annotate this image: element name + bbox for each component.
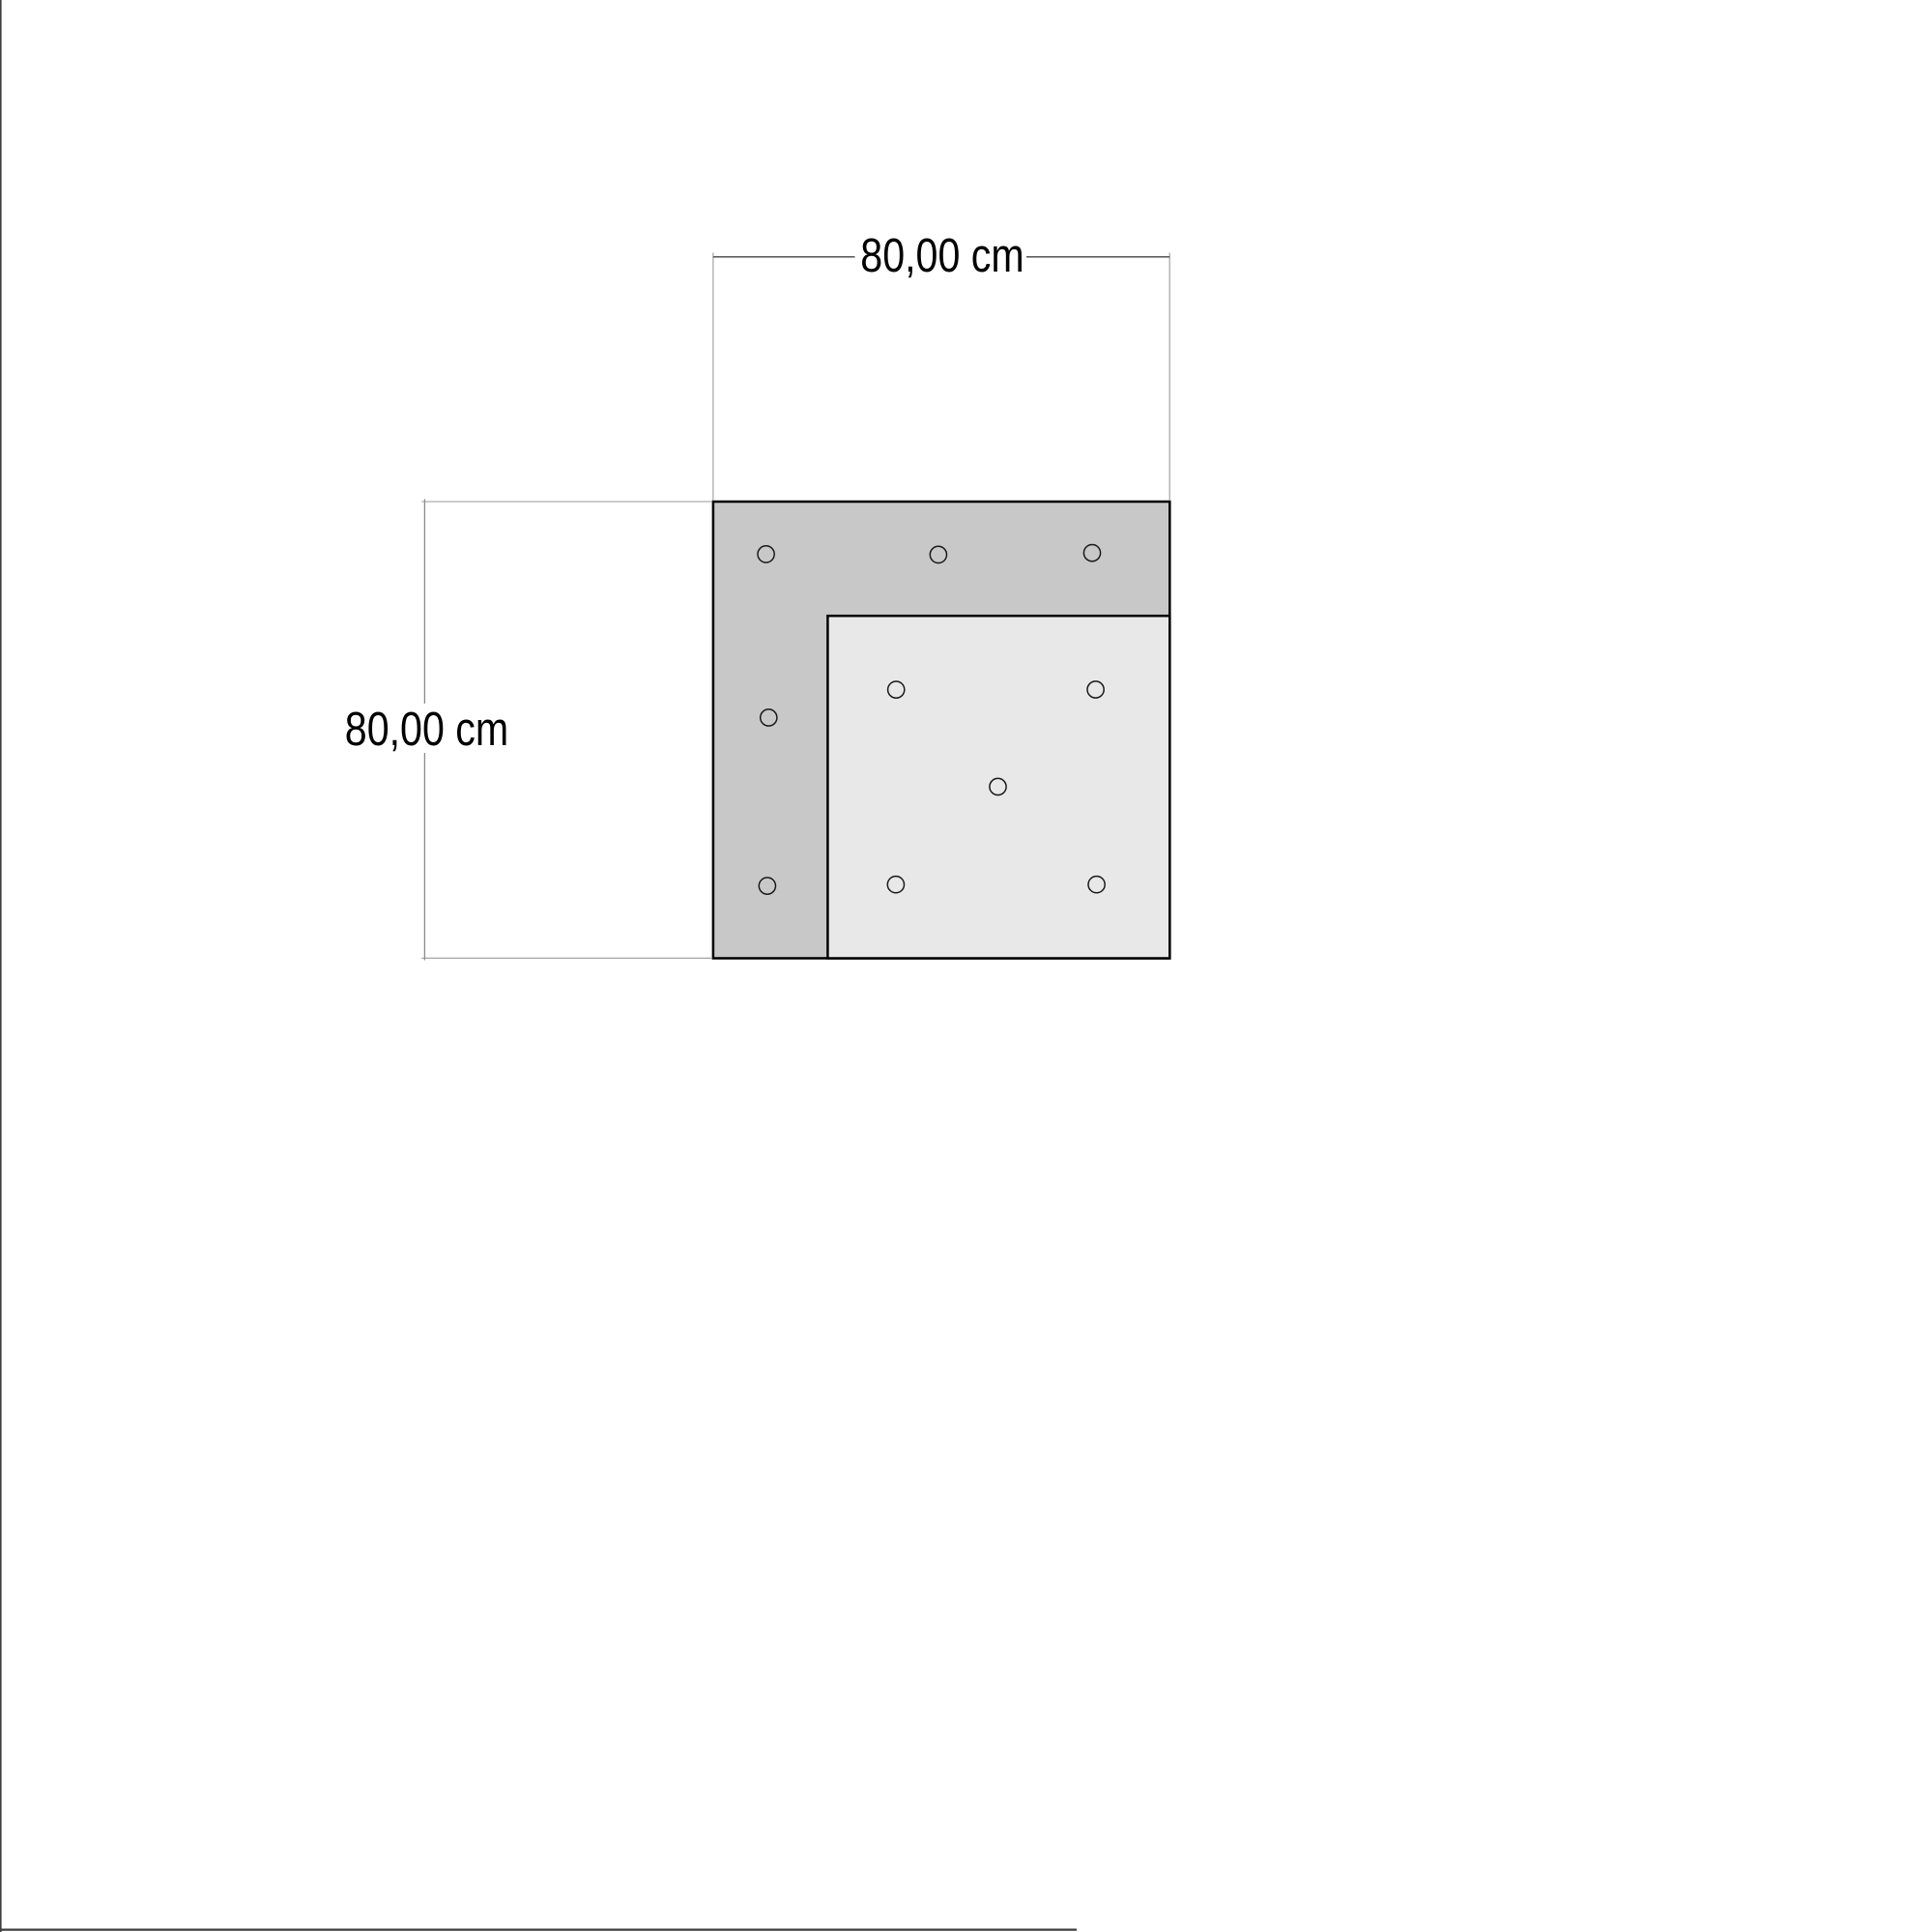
svg-text:80,00 cm: 80,00 cm: [860, 229, 1024, 282]
svg-text:80,00 cm: 80,00 cm: [345, 703, 508, 756]
